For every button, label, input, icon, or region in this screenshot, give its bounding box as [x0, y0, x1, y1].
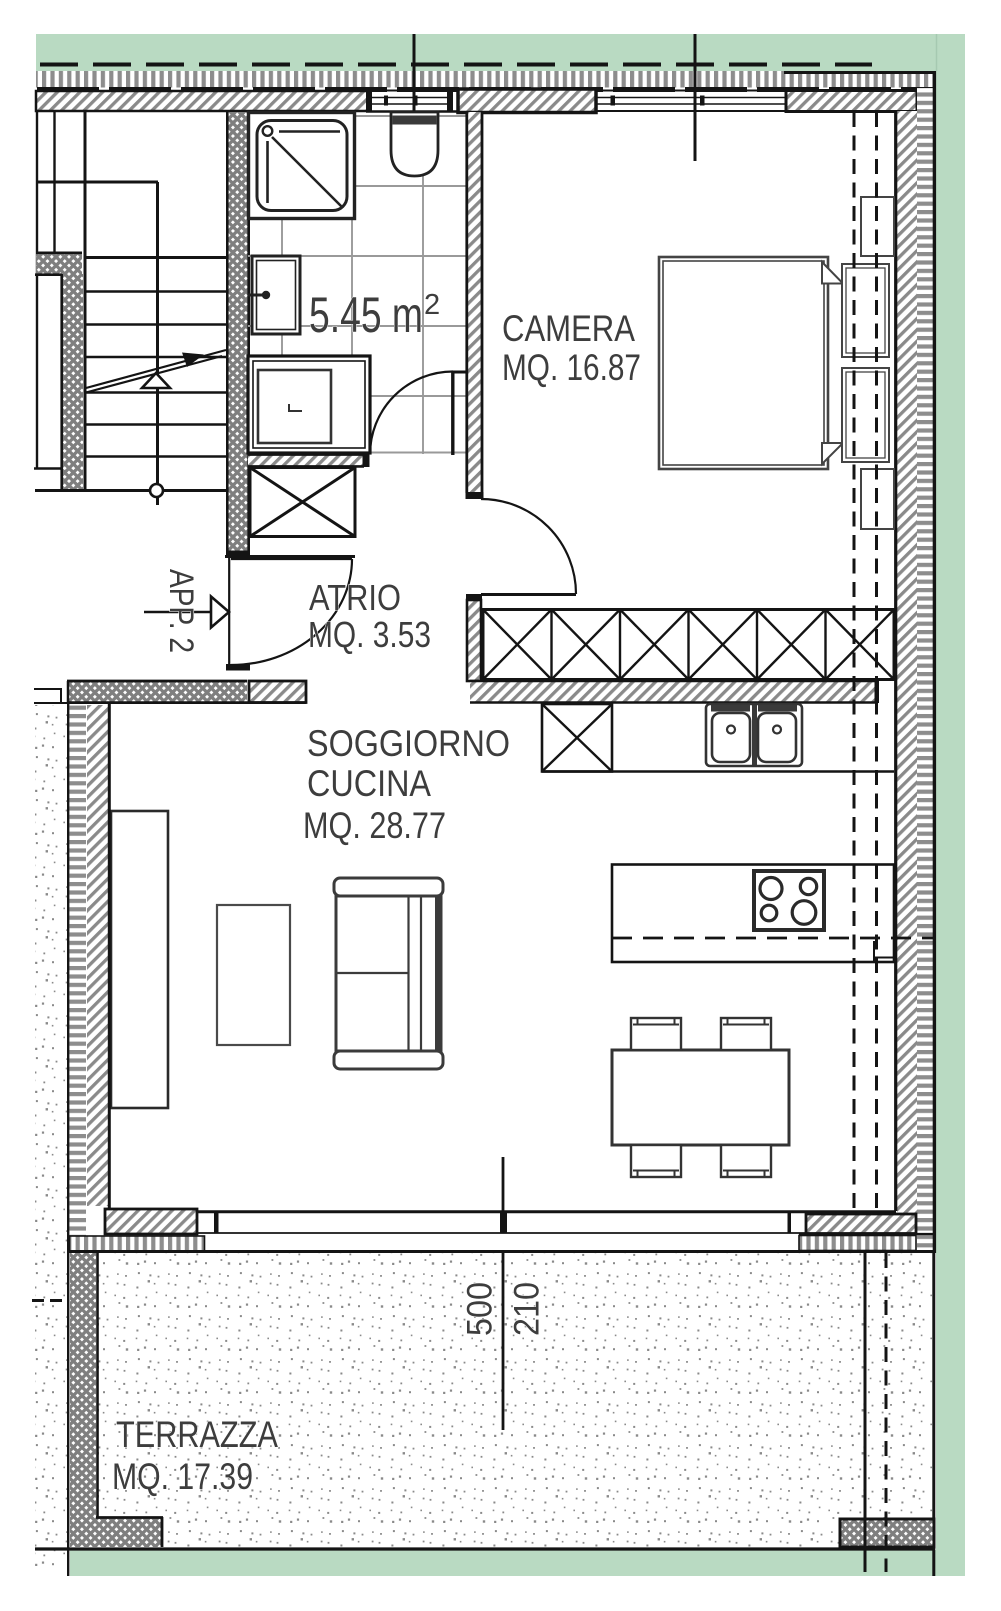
svg-text:CAMERA: CAMERA	[502, 308, 635, 349]
svg-text:MQ. 16.87: MQ. 16.87	[502, 347, 641, 388]
svg-text:MQ. 3.53: MQ. 3.53	[308, 614, 431, 655]
svg-text:MQ. 17.39: MQ. 17.39	[112, 1456, 253, 1497]
svg-text:TERRAZZA: TERRAZZA	[116, 1414, 278, 1455]
svg-text:CUCINA: CUCINA	[307, 763, 431, 804]
svg-text:ATRIO: ATRIO	[309, 577, 401, 618]
svg-text:500: 500	[461, 1282, 500, 1336]
svg-text:APP. 2: APP. 2	[162, 569, 200, 653]
svg-text:SOGGIORNO: SOGGIORNO	[307, 723, 510, 764]
svg-text:210: 210	[508, 1282, 547, 1336]
svg-text:2: 2	[424, 289, 440, 321]
svg-text:MQ. 28.77: MQ. 28.77	[303, 805, 446, 846]
svg-text:5.45 m: 5.45 m	[309, 287, 423, 343]
